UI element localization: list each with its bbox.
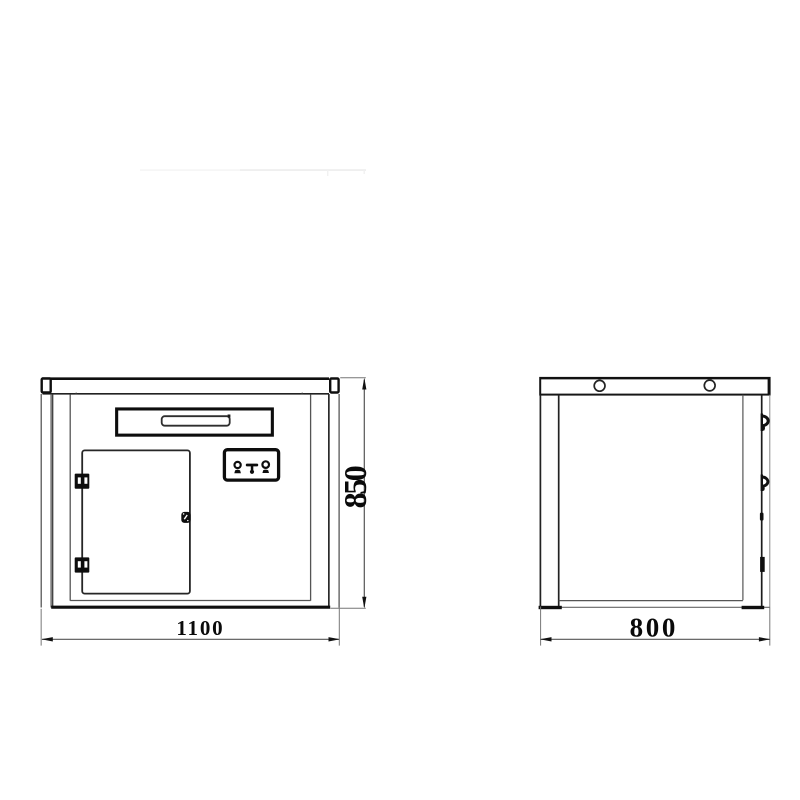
svg-text:1100: 1100 (176, 616, 224, 640)
svg-text:850: 850 (337, 466, 373, 508)
svg-text:800: 800 (630, 613, 678, 643)
